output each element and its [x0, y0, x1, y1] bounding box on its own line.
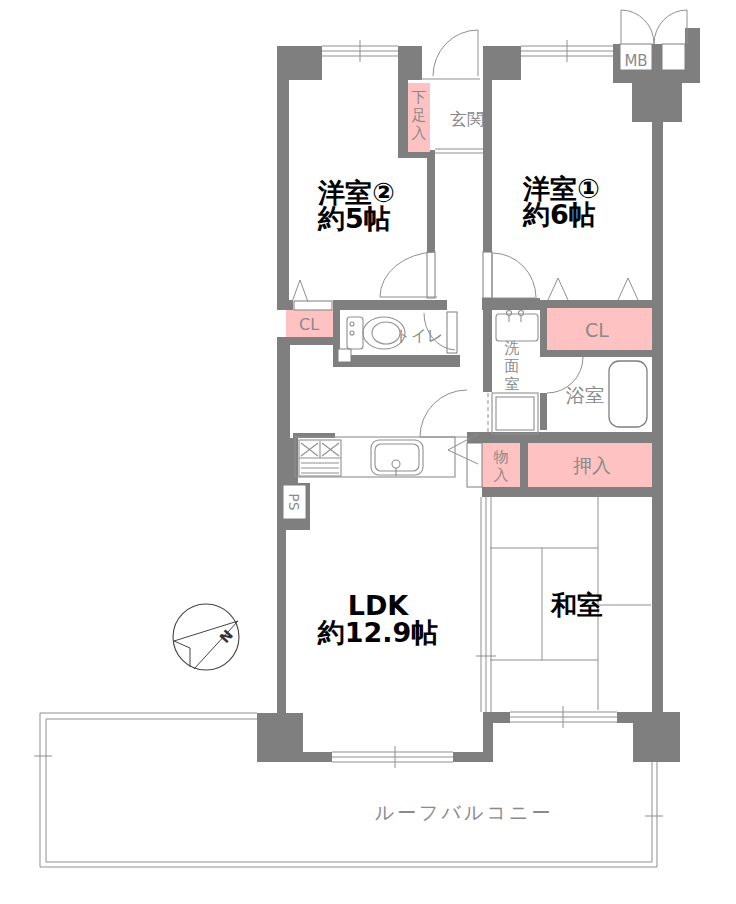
floor-plan-page: N 洋室② 約5帖 洋室① 約6帖 LDK 約12.9帖 和室 玄関 下 足 入… — [0, 0, 736, 904]
toilet-door-jamb — [447, 312, 457, 353]
svg-text:室: 室 — [505, 375, 520, 393]
washing-machine — [492, 393, 538, 434]
shaft-box — [662, 44, 685, 70]
hanger-marks — [292, 278, 638, 302]
pipe-space-label: PS — [286, 493, 302, 510]
entrance-label: 玄関 — [450, 109, 484, 129]
compass: N — [173, 604, 239, 670]
storage-small-label: 物 入 — [494, 448, 509, 484]
ldk-door — [420, 390, 467, 437]
toilet-corner-box — [338, 349, 351, 362]
svg-text:面: 面 — [505, 357, 520, 375]
kitchen-counter — [295, 437, 455, 477]
bedroom1-window — [521, 40, 613, 62]
meter-box-label: MB — [624, 52, 647, 70]
bathtub — [609, 361, 647, 427]
bedroom1-door — [492, 252, 537, 298]
svg-text:入: 入 — [412, 124, 427, 142]
entrance-door — [420, 30, 480, 79]
shoe-box-label: 下 足 入 — [412, 88, 427, 142]
hall-left-door-jamb — [427, 252, 435, 298]
storage-small-front — [467, 443, 482, 487]
walls — [257, 28, 700, 762]
floor-plan-drawing: N 洋室② 約5帖 洋室① 約6帖 LDK 約12.9帖 和室 玄関 下 足 入… — [0, 0, 736, 904]
storage-areas — [286, 83, 652, 487]
bedroom2-size: 約5帖 — [317, 203, 391, 234]
svg-text:洗: 洗 — [505, 339, 520, 357]
fusuma-sliding-doors — [476, 497, 496, 712]
hanger-mark-right1 — [548, 278, 568, 300]
svg-text:物: 物 — [494, 448, 509, 466]
ldk-window — [332, 746, 453, 768]
hanger-mark-left — [292, 280, 308, 302]
compass-north-label: N — [216, 627, 236, 646]
svg-text:下: 下 — [412, 88, 427, 106]
toilet-label: トイレ — [394, 326, 443, 345]
hanger-mark-right2 — [618, 278, 638, 300]
closet-left-opening — [294, 301, 332, 310]
meter-box-doors — [621, 10, 687, 44]
washroom-sink — [496, 311, 538, 342]
bedroom1-size: 約6帖 — [522, 199, 596, 230]
japanese-room-window — [510, 706, 617, 728]
japanese-room-label: 和室 — [550, 590, 603, 620]
futon-closet-label: 押入 — [573, 454, 611, 476]
entrance-step — [435, 149, 483, 153]
roof-balcony-outline — [34, 713, 663, 867]
closet-left-label: CL — [299, 315, 319, 334]
closet-right-label: CL — [585, 319, 609, 341]
stove — [299, 440, 341, 476]
svg-text:入: 入 — [494, 466, 509, 484]
kitchen-sink — [371, 440, 423, 476]
roof-balcony-label: ルーフバルコニー — [375, 801, 554, 823]
bathroom-label: 浴室 — [566, 384, 604, 406]
ldk-size: 約12.9帖 — [317, 617, 439, 648]
svg-text:足: 足 — [412, 106, 427, 124]
hall-right-door-jamb — [483, 252, 492, 298]
washroom-label: 洗 面 室 — [505, 339, 520, 393]
bedroom2-window — [322, 40, 398, 62]
